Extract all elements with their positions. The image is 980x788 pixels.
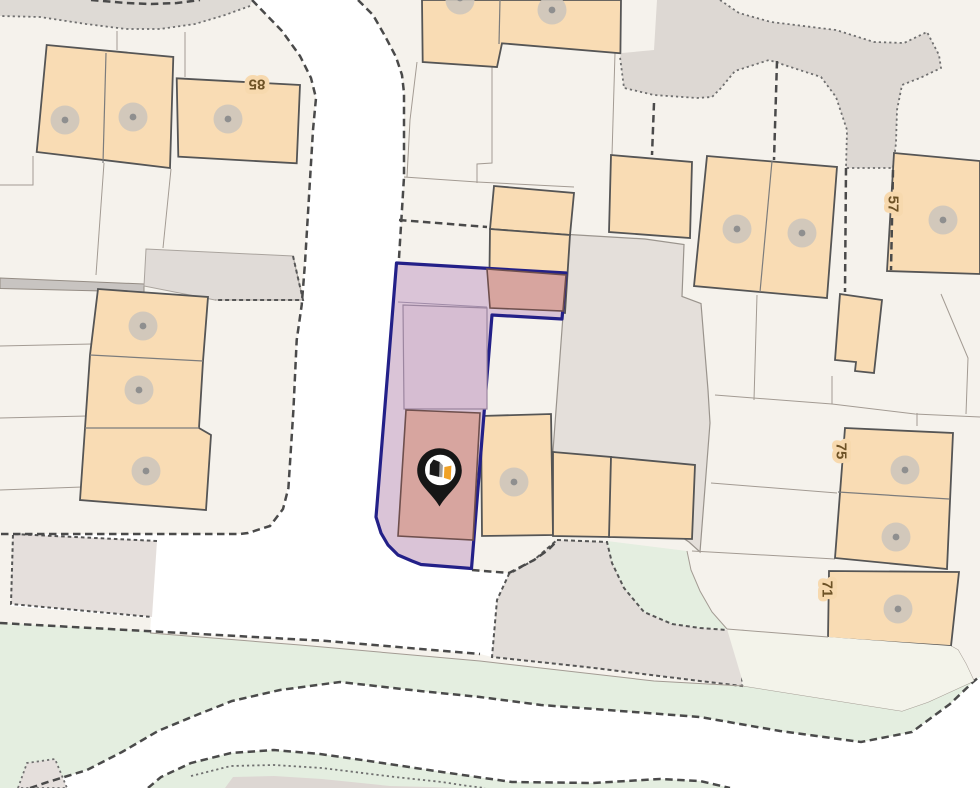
svg-text:57: 57 (885, 196, 902, 213)
svg-text:75: 75 (833, 443, 850, 460)
svg-text:85: 85 (249, 75, 266, 92)
svg-text:71: 71 (819, 581, 836, 598)
